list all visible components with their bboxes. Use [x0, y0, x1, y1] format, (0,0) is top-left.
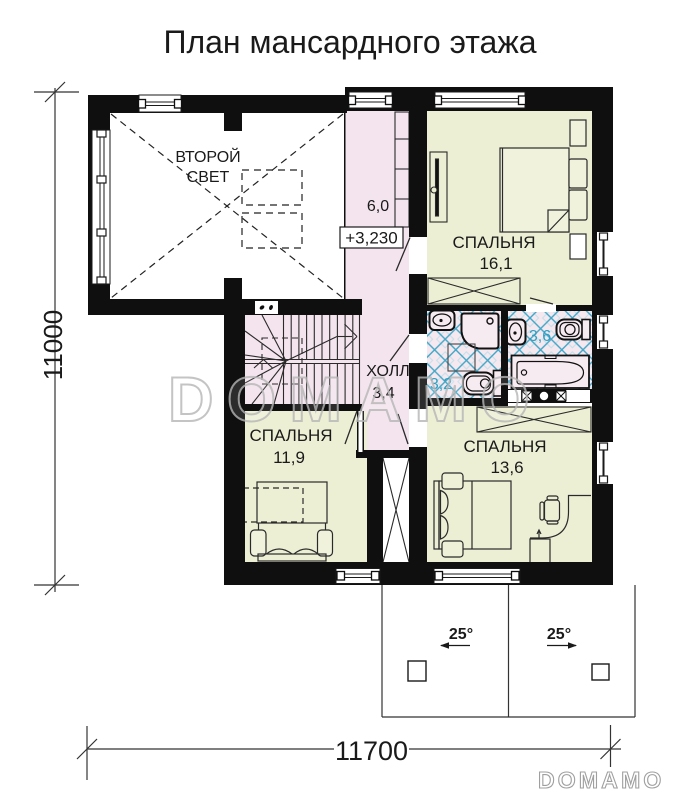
- svg-text:3,6: 3,6: [529, 328, 551, 345]
- svg-text:DOMAMO: DOMAMO: [168, 365, 543, 435]
- svg-text:ВТОРОЙ: ВТОРОЙ: [175, 147, 240, 166]
- svg-text:11000: 11000: [38, 310, 68, 380]
- svg-text:6,0: 6,0: [367, 198, 389, 215]
- svg-text:+3,230: +3,230: [345, 229, 397, 248]
- svg-text:25°: 25°: [547, 626, 571, 643]
- svg-text:DOMAMO: DOMAMO: [538, 767, 665, 793]
- svg-text:13,6: 13,6: [490, 458, 523, 477]
- svg-text:СПАЛЬНЯ: СПАЛЬНЯ: [463, 437, 546, 456]
- svg-text:11700: 11700: [335, 736, 408, 766]
- svg-text:План мансардного этажа: План мансардного этажа: [163, 24, 536, 60]
- svg-text:25°: 25°: [449, 626, 473, 643]
- svg-text:СПАЛЬНЯ: СПАЛЬНЯ: [452, 233, 535, 252]
- svg-text:СВЕТ: СВЕТ: [187, 169, 230, 186]
- svg-text:16,1: 16,1: [479, 254, 512, 273]
- svg-text:11,9: 11,9: [273, 448, 305, 467]
